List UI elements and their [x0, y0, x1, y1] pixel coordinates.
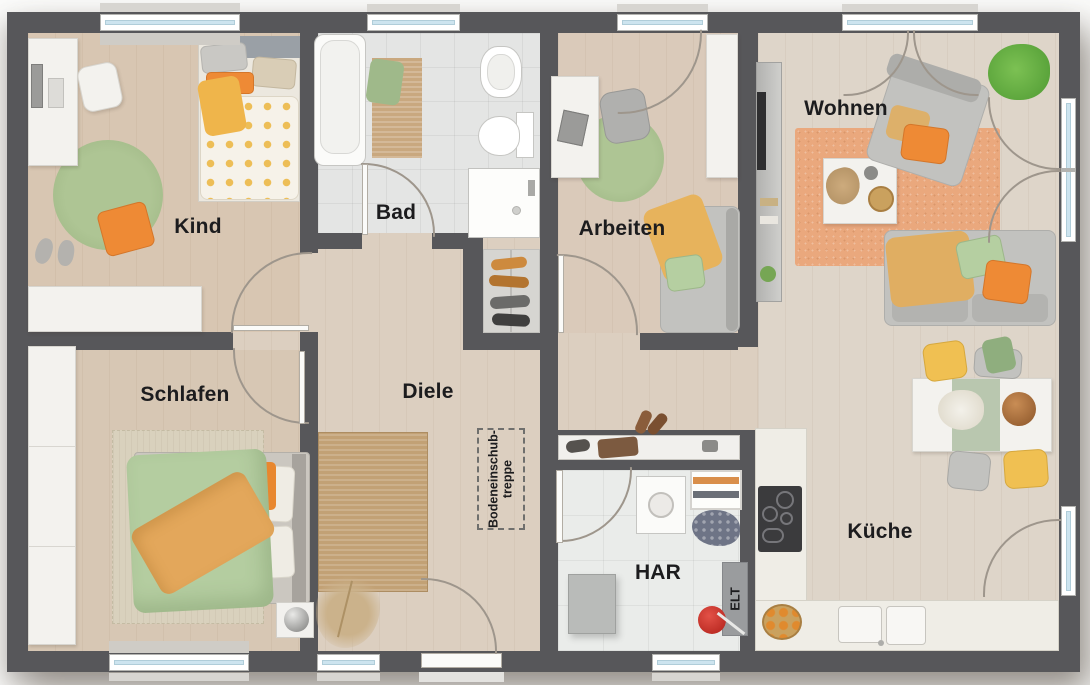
dresser [28, 286, 202, 332]
bathtub-inner [320, 40, 360, 154]
room-label-bad: Bad [376, 201, 416, 225]
entrance-door [421, 653, 502, 668]
shutter-box [100, 3, 240, 12]
pillow [251, 56, 297, 90]
door-leaf [299, 351, 305, 424]
room-label-har: HAR [635, 561, 681, 585]
door-leaf [233, 325, 309, 331]
shoes [492, 313, 531, 327]
window [109, 654, 249, 671]
bowl [868, 186, 894, 212]
shelf-books [760, 216, 778, 224]
door-glass [1066, 511, 1071, 591]
room-label-schlafen: Schlafen [140, 383, 229, 407]
burner [762, 528, 784, 543]
shelf-plant [760, 266, 776, 282]
wall [738, 33, 758, 347]
monitor [31, 64, 43, 108]
pillow [981, 259, 1032, 305]
sofa-back [726, 208, 738, 331]
shutter-box [367, 4, 460, 12]
window-glass [105, 20, 235, 25]
window-glass [372, 20, 455, 25]
loft-ladder-label: Bodeneinschub- treppe [487, 424, 516, 534]
shutter-box [109, 673, 249, 681]
window-glass [657, 660, 715, 665]
floor-plan: Bodeneinschub- treppe ELT Kind Bad Arbei… [0, 0, 1090, 685]
sink-basin [487, 54, 515, 90]
wall [640, 333, 738, 350]
window [100, 14, 240, 31]
window [367, 14, 460, 31]
room-label-wohnen: Wohnen [804, 97, 888, 121]
terrace-door [1061, 506, 1076, 596]
wall [300, 233, 362, 249]
window-glass [322, 660, 375, 665]
tv [757, 92, 766, 170]
window-glass [114, 660, 244, 665]
vase [864, 166, 878, 180]
flowers [938, 390, 984, 430]
sink-basin [886, 606, 926, 645]
door-leaf [556, 470, 563, 543]
dining-chair [946, 450, 992, 492]
keyboard [48, 78, 64, 108]
tall-cabinet [706, 34, 738, 178]
roller-band [109, 641, 249, 653]
bronze-bowl [1002, 392, 1036, 426]
fruit-basket [762, 604, 802, 640]
window-glass [622, 20, 703, 25]
laundry-on-rack [693, 491, 739, 498]
utility-box [568, 574, 616, 634]
handbag [597, 436, 639, 458]
sink-basin [838, 606, 882, 643]
shutter-box [652, 673, 720, 681]
washing-machine-door [648, 492, 674, 518]
shower-head [528, 180, 535, 196]
decor-sphere [284, 607, 309, 632]
loft-ladder-label-line1: Bodeneinschub- [487, 424, 501, 534]
drying-rack [690, 470, 742, 510]
wardrobe-divider [28, 446, 76, 447]
shutter-box [842, 4, 978, 12]
door-leaf [362, 164, 368, 235]
window [317, 654, 380, 671]
pillow [200, 42, 249, 75]
shower-tray [468, 168, 540, 238]
decor-item [702, 440, 718, 452]
burner [762, 506, 778, 522]
window-glass [847, 20, 973, 25]
entry-step [419, 672, 504, 682]
wardrobe-divider [28, 546, 76, 547]
shelf-books [760, 198, 778, 206]
window [652, 654, 720, 671]
burner [780, 512, 793, 525]
shower-drain [512, 206, 521, 215]
pillow [664, 254, 706, 293]
loft-ladder-label-line2: treppe [501, 424, 515, 534]
burner [776, 491, 794, 509]
window [842, 14, 978, 31]
shutter-box [317, 673, 380, 681]
faucet [878, 640, 884, 646]
dining-chair [1003, 449, 1050, 490]
vacuum-cleaner [698, 606, 726, 634]
toilet-bowl [478, 116, 520, 156]
door-leaf [558, 255, 564, 333]
room-label-kueche: Küche [847, 520, 912, 544]
pillow [900, 123, 951, 165]
wardrobe [28, 346, 76, 645]
laundry-on-rack [693, 477, 739, 484]
room-label-kind: Kind [174, 215, 221, 239]
room-label-arbeiten: Arbeiten [579, 217, 666, 241]
hallway-jute-rug [318, 432, 428, 592]
elt-label: ELT [728, 587, 743, 611]
window [617, 14, 708, 31]
french-door-divider [1061, 168, 1076, 172]
dining-chair [922, 339, 969, 382]
plant [988, 44, 1050, 100]
shutter-box [617, 4, 708, 12]
towel [365, 58, 405, 106]
room-label-diele: Diele [402, 380, 453, 404]
roller-band [100, 33, 240, 45]
